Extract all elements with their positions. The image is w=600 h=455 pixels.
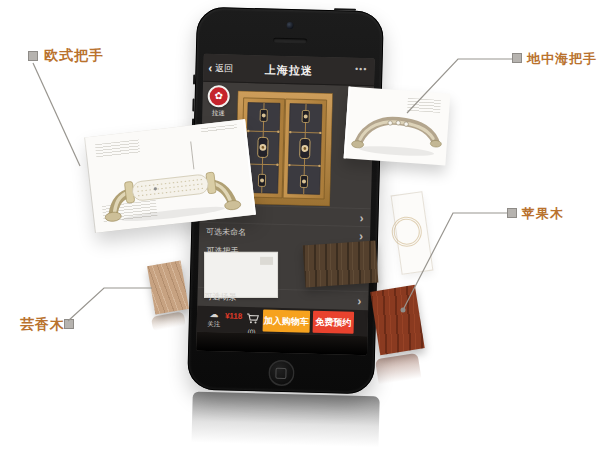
ghost-panel-sample	[391, 191, 434, 275]
screen-bottom-fade	[196, 332, 367, 355]
mediterranean-handle-graphic	[346, 91, 450, 166]
free-booking-button[interactable]: 免费预约	[313, 311, 355, 334]
row-scene-label: 可选场景	[204, 291, 236, 303]
square-bullet-icon	[507, 208, 517, 218]
cart-button[interactable]: (0)	[243, 310, 260, 335]
callout-label-apple-wood: 苹果木	[522, 205, 564, 223]
callout-label-rue-wood: 芸香木	[20, 316, 65, 334]
chevron-right-icon: ›	[359, 212, 363, 222]
callout-label-european-handle: 欧式把手	[44, 47, 104, 65]
follow-label: 关注	[205, 320, 223, 329]
brand-avatar[interactable]: ✿	[207, 85, 230, 108]
front-camera-icon	[286, 22, 293, 29]
square-bullet-icon	[28, 51, 38, 61]
row-naming-label: 可选未命名	[206, 226, 246, 238]
navbar: ‹ 返回 上海拉迷 •••	[203, 54, 375, 86]
mediterranean-handle-card	[344, 87, 451, 166]
add-to-cart-button[interactable]: 加入购物车	[263, 309, 311, 332]
follow-icon: ☁	[205, 309, 223, 319]
callout-label-mediterranean-handle: 地中海把手	[527, 50, 597, 68]
square-bullet-icon	[512, 53, 522, 63]
phone-reflection	[191, 392, 380, 455]
more-icon[interactable]: •••	[355, 64, 368, 74]
apple-wood-sample	[370, 285, 424, 355]
volume-up-button	[192, 99, 194, 112]
thumbnail-detail	[260, 257, 273, 265]
european-handle-graphic	[92, 148, 248, 229]
follow-button[interactable]: ☁ 关注	[205, 309, 224, 329]
apple-wood-reflection	[375, 353, 422, 389]
mute-switch	[193, 75, 195, 85]
rosette-icon	[390, 215, 424, 249]
european-handle-card	[85, 119, 256, 233]
power-button	[334, 8, 356, 11]
walnut-wood-sample	[303, 241, 379, 288]
brand-avatar-label: 拉迷	[205, 109, 231, 119]
page-title: 上海拉迷	[203, 61, 374, 80]
sketch-text-decoration	[95, 139, 140, 158]
promo-canvas: ‹ 返回 上海拉迷 ••• ✿ 拉迷	[0, 0, 600, 455]
square-bullet-icon	[64, 319, 74, 329]
brand-logo-icon: ✿	[209, 87, 227, 105]
chevron-right-icon: ›	[359, 230, 363, 240]
list-item-naming[interactable]: 可选未命名 ›	[199, 222, 370, 244]
home-button[interactable]	[268, 360, 295, 387]
earpiece-speaker-icon	[273, 38, 307, 44]
chevron-right-icon: ›	[357, 295, 361, 305]
cart-icon	[245, 313, 258, 324]
price-badge: ¥118	[225, 311, 243, 320]
sketch-text-decoration	[201, 124, 237, 133]
rue-wood-sample	[147, 260, 189, 314]
